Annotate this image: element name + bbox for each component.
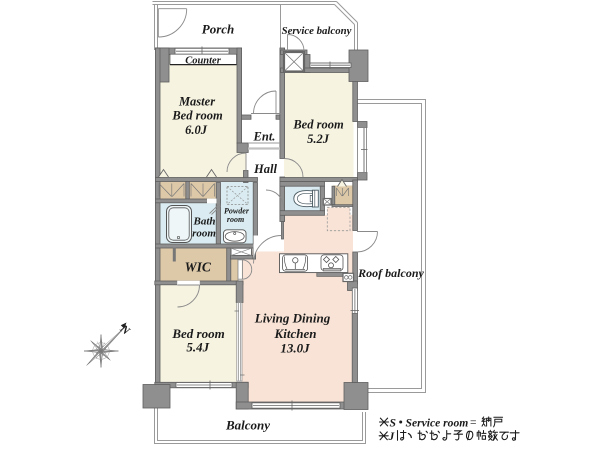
svg-text:5.4J: 5.4J: [186, 340, 209, 355]
svg-text:Counter: Counter: [185, 55, 222, 66]
svg-text:=: =: [470, 417, 477, 429]
svg-text:5.2J: 5.2J: [307, 132, 330, 146]
svg-text:Kitchen: Kitchen: [274, 326, 317, 341]
svg-text:Bed room: Bed room: [292, 118, 344, 132]
svg-text:WIC: WIC: [185, 260, 212, 275]
svg-text:Powder: Powder: [224, 206, 250, 215]
svg-text:Service balcony: Service balcony: [282, 25, 352, 37]
svg-text:6.0J: 6.0J: [185, 123, 208, 137]
svg-text:Porch: Porch: [202, 22, 235, 37]
svg-text:Bed room: Bed room: [171, 109, 223, 123]
svg-text:Bath: Bath: [192, 216, 215, 228]
svg-text:S: S: [390, 416, 396, 429]
svg-text:Living Dining: Living Dining: [254, 311, 331, 326]
svg-text:Hall: Hall: [253, 162, 277, 176]
svg-text:Balcony: Balcony: [225, 418, 270, 433]
svg-text:13.0J: 13.0J: [280, 341, 310, 356]
svg-text:Ent.: Ent.: [253, 130, 276, 144]
svg-text:Roof balcony: Roof balcony: [357, 266, 424, 280]
svg-text:room: room: [227, 215, 244, 224]
svg-text:Master: Master: [178, 94, 215, 108]
svg-text:Service room: Service room: [406, 416, 469, 429]
svg-text:room: room: [192, 228, 216, 240]
